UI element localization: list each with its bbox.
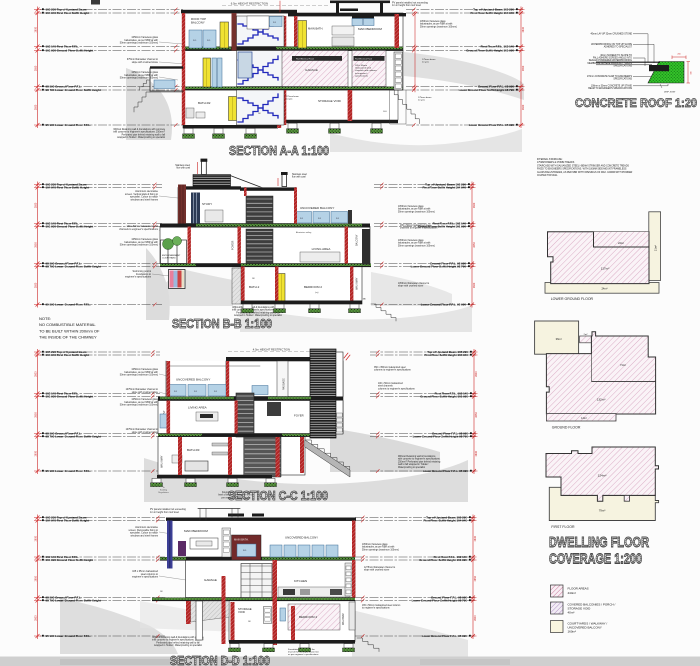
svg-text:2850: 2850 [35,65,38,71]
svg-text:1050mm Rainwater channel to: 1050mm Rainwater channel to [398,282,430,285]
svg-text:MAIN BEDROOM: MAIN BEDROOM [184,529,208,533]
svg-text:specifications: specifications [355,74,369,77]
svg-text:2800: 2800 [475,450,478,456]
svg-text:24m²: 24m² [601,287,607,291]
svg-text:Lower Ground Floor F.F.L. 95: Lower Ground Floor F.F.L. 95 990 [423,469,469,473]
svg-text:2m²: 2m² [584,333,588,336]
svg-text:STAIRCASE WITH GALVANIZED STEE: STAIRCASE WITH GALVANIZED STEEL I-BEAM S… [537,164,629,167]
svg-text:FALL ADHERE SCREED ANGLE INTO: FALL ADHERE SCREED ANGLE INTO [593,57,632,60]
svg-text:98 790 Lower Ground Floor Sof: 98 790 Lower Ground Floor Soffit Height [46,88,101,92]
svg-text:First Floor Soffit Height 104: First Floor Soffit Height 104 940 [422,186,466,190]
svg-text:95 990 Lower Ground Floor F.F: 95 990 Lower Ground Floor F.F.L. [46,303,91,307]
svg-text:balustrades, as per NBR at wit: balustrades, as per NBR at with [398,242,431,245]
svg-text:2800: 2800 [473,202,476,208]
svg-text:350 x 350mm Galvanized steel: 350 x 350mm Galvanized steel [374,366,406,369]
svg-text:(sq): (sq) [315,292,319,294]
svg-text:flue with cowl: flue with cowl [292,176,306,179]
svg-text:R-5: R-5 [174,391,177,393]
svg-text:14m²: 14m² [581,417,587,420]
svg-text:BATH.R2: BATH.R2 [198,101,211,105]
svg-text:CONCRETE ROOF 1:20: CONCRETE ROOF 1:20 [575,98,697,110]
svg-text:UNCOVERED BALCONY: UNCOVERED BALCONY [176,378,210,382]
svg-text:101 990 Ground Floor Soffit H: 101 990 Ground Floor Soffit Height [46,395,94,399]
svg-text:slope with crushed stone: slope with crushed stone [132,391,159,394]
svg-text:GARAGE: GARAGE [204,578,217,582]
svg-text:infill concrete to engineer's: infill concrete to engineer's specificat… [113,131,165,134]
svg-text:FOYER: FOYER [231,241,235,250]
svg-text:170mm CONCRETE SLAB TO ENGINEE: 170mm CONCRETE SLAB TO ENGINEER'S [587,75,633,78]
svg-text:BEDROOM 4: BEDROOM 4 [299,615,317,619]
svg-text:2800: 2800 [475,371,478,377]
svg-text:MAIN BATH.: MAIN BATH. [308,27,323,31]
svg-text:1050mm frameless glass: 1050mm frameless glass [398,205,424,208]
svg-text:SECTION C-C 1:100: SECTION C-C 1:100 [228,489,328,503]
svg-text:Lower Ground Floor F.F.L. 95: Lower Ground Floor F.F.L. 95 990 [422,634,468,638]
svg-text:Perforated pipe behind retaini: Perforated pipe behind retaining wall to… [122,133,166,136]
svg-text:FOYER: FOYER [294,414,304,418]
svg-text:Plant/Electrical Panel: Plant/Electrical Panel [296,58,314,61]
svg-text:175MM RISERS & 270MM TREADS: 175MM RISERS & 270MM TREADS [537,161,575,164]
svg-text:2800: 2800 [522,26,525,32]
svg-text:36m²: 36m² [556,337,562,341]
svg-text:104 940 First Floor Soffit He: 104 940 First Floor Soffit Height [46,186,90,190]
svg-text:R-5: R-5 [336,218,339,220]
svg-text:101 990 Ground Floor Soffit H: 101 990 Ground Floor Soffit Height [46,49,94,53]
svg-text:INTERNAL STAIRCASE:: INTERNAL STAIRCASE: [537,158,563,161]
svg-text:COVERAGE 1:200: COVERAGE 1:200 [549,552,642,568]
svg-text:98 790 Lower Ground Floor Sof: 98 790 Lower Ground Floor Soffit Height [46,435,101,439]
svg-text:1m in height from roof level: 1m in height from roof level [150,511,179,514]
svg-text:50mm openings (maximum 100mm): 50mm openings (maximum 100mm) [362,549,399,551]
svg-text:2800: 2800 [35,615,38,621]
svg-text:THE INSIDE OF THE CHIMNEY: THE INSIDE OF THE CHIMNEY [39,335,97,340]
svg-text:R-5: R-5 [273,22,276,24]
svg-text:to spec: to spec [286,98,293,101]
svg-text:50mm openings (maximum 100mm): 50mm openings (maximum 100mm) [120,374,158,377]
svg-text:2800: 2800 [522,104,525,110]
svg-text:50mm openings (maximum 100mm): 50mm openings (maximum 100mm) [120,77,158,80]
svg-text:2850: 2850 [35,242,38,248]
svg-text:PASSAGE: PASSAGE [283,378,286,390]
svg-text:COURTYARD: COURTYARD [162,257,176,260]
svg-text:BEDROOM 2: BEDROOM 2 [304,285,322,289]
svg-text:slope with crushed stone: slope with crushed stone [132,61,159,64]
svg-text:engineer's specifications: engineer's specifications [125,276,152,279]
svg-text:2800: 2800 [474,535,477,541]
svg-text:1050mm frameless glass: 1050mm frameless glass [420,20,446,23]
svg-text:COATED TOP-RAIL: COATED TOP-RAIL [537,174,558,177]
svg-text:windows and steel frames: windows and steel frames [130,534,158,537]
svg-text:to engineer's specifications: to engineer's specifications [362,607,390,610]
svg-text:Ground Floor Soffit Height 10: Ground Floor Soffit Height 101 990 [466,49,514,53]
svg-text:2850: 2850 [35,575,38,581]
svg-text:Plant/Electrical Panel: Plant/Electrical Panel [355,58,373,61]
svg-text:50mm openings (maximum 100mm): 50mm openings (maximum 100mm) [120,42,158,45]
svg-text:Lower Ground Floor F.F.L. 95: Lower Ground Floor F.F.L. 95 990 [469,123,515,127]
svg-text:MAIN BATH.: MAIN BATH. [234,538,249,542]
svg-text:40m²: 40m² [568,611,575,615]
svg-text:KITCHEN: KITCHEN [294,579,307,583]
svg-text:165 x 50mm Galvanized steel co: 165 x 50mm Galvanized steel column [362,604,401,607]
svg-text:132m²: 132m² [597,398,606,402]
svg-text:2850: 2850 [475,412,478,418]
svg-text:1275mm Rainwater channel to: 1275mm Rainwater channel to [364,566,396,569]
svg-text:with concrete to engineer's sp: with concrete to engineer's specificatio… [398,458,441,461]
svg-text:engineer's specifications: engineer's specifications [132,576,159,579]
svg-text:balustrades, as per NBR at wit: balustrades, as per NBR at with [420,23,453,26]
svg-text:Ground Floor Soffit Height 10: Ground Floor Soffit Height 101 990 [420,395,468,399]
svg-text:Waterproofing to specialist: Waterproofing to specialist [398,466,425,469]
svg-text:WALKWAY: WALKWAY [342,613,345,625]
svg-text:50mm openings (maximum 100mm): 50mm openings (maximum 100mm) [398,245,435,247]
svg-text:NO COMBUSTIBLE MATERIAL: NO COMBUSTIBLE MATERIAL [39,322,96,327]
svg-text:Without Retaining wall & found: Without Retaining wall & foundations wit… [113,128,165,131]
svg-text:104 940 First Floor Soffit He: 104 940 First Floor Soffit Height [46,519,90,523]
svg-text:50mm openings (maximum 100mm): 50mm openings (maximum 100mm) [120,404,158,407]
svg-text:columns to engineer's specific: columns to engineer's specifications [378,387,416,390]
svg-text:2800: 2800 [35,282,38,288]
svg-text:to spec: to spec [418,99,426,102]
svg-text:1050mm frameless glass: 1050mm frameless glass [398,239,424,242]
svg-text:LOWER GROUND FLOOR: LOWER GROUND FLOOR [551,297,594,301]
svg-text:2800: 2800 [474,615,477,621]
svg-text:ADHERED TO SPECIALIST: ADHERED TO SPECIALIST [604,46,633,49]
svg-text:TO BE BUILT WITHIN 200mm OF: TO BE BUILT WITHIN 200mm OF [39,328,100,333]
svg-text:Lower Ground Floor Soffit Heig: Lower Ground Floor Soffit Height 98 790 [411,265,467,269]
svg-text:Aluminium railing: Aluminium railing [296,231,311,234]
svg-text:UNCOVERED BALCONY: UNCOVERED BALCONY [300,206,334,210]
svg-text:Lower Ground Floor Soffit Heig: Lower Ground Floor Soffit Height 98 790 [459,88,515,92]
svg-text:to engineer's: to engineer's [355,72,368,75]
svg-text:2800: 2800 [35,535,38,541]
svg-text:2800: 2800 [35,202,38,208]
svg-text:50mm openings (maximum 100mm): 50mm openings (maximum 100mm) [420,26,457,28]
svg-text:2850: 2850 [522,65,525,71]
svg-text:FIXED TO ENGINEERS SPECIFICATI: FIXED TO ENGINEERS SPECIFICATIONS. WITH … [537,168,627,171]
svg-text:channels to engineer's specifi: channels to engineer's specifications [119,228,159,231]
svg-text:21m²: 21m² [654,245,658,251]
svg-text:wrapped in 'hidden'. Waterproo: wrapped in 'hidden'. Waterproofing to sp… [117,136,165,139]
svg-text:Regulations: Regulations [158,491,169,494]
svg-text:DWELLING FLOOR: DWELLING FLOOR [549,535,649,551]
svg-text:2800: 2800 [473,282,476,288]
svg-text:98 790 Lower Ground Floor Sof: 98 790 Lower Ground Floor Soffit Height [46,265,101,269]
svg-text:channels to engineer's specifi: channels to engineer's specifications [400,227,438,230]
svg-text:100 x 50mm Galvanized: 100 x 50mm Galvanized [378,383,403,385]
svg-text:as per engineer's specificatio: as per engineer's specifications [288,653,319,656]
svg-text:FIRST FLOOR: FIRST FLOOR [551,525,575,529]
svg-text:124m²: 124m² [598,474,607,478]
svg-text:BATH.R3: BATH.R3 [187,448,200,452]
svg-text:95 990 Lower Ground Floor F.F: 95 990 Lower Ground Floor F.F.L. [46,123,91,127]
svg-text:4.5m HEIGHT RESTRICTION: 4.5m HEIGHT RESTRICTION [253,348,290,352]
svg-text:First Floor Soffit Height 104: First Floor Soffit Height 104 940 [423,519,467,523]
svg-text:WALKWAY: WALKWAY [161,455,164,468]
svg-text:2800: 2800 [35,450,38,456]
svg-text:1050mm frameless glass: 1050mm frameless glass [362,543,388,546]
svg-text:LIVING AREA: LIVING AREA [312,247,331,251]
svg-text:balustrades, as per NBR at wit: balustrades, as per NBR at with [362,546,395,549]
svg-text:MAIN BEDROOM: MAIN BEDROOM [358,27,382,31]
svg-text:444m²: 444m² [568,591,577,595]
svg-text:SECTION D-D 1:100: SECTION D-D 1:100 [170,654,270,666]
svg-text:Lower Ground Floor Soffit Heig: Lower Ground Floor Soffit Height 98 790 [412,599,468,603]
svg-text:Without Retaining wall & found: Without Retaining wall & foundations [398,455,436,458]
svg-text:2850: 2850 [474,575,477,581]
svg-text:SECTION B-B 1:100: SECTION B-B 1:100 [172,317,272,331]
svg-text:98 790 Lower Ground Floor Sof: 98 790 Lower Ground Floor Soffit Height [46,599,101,603]
svg-text:columns to engineer's specific: columns to engineer's specifications [374,369,412,372]
svg-text:VOID: VOID [238,610,245,614]
svg-text:wrapped in 'hidden'. Waterproo: wrapped in 'hidden'. Waterproofing to sp… [154,644,202,647]
svg-text:First Floor Soffit Height 104: First Floor Soffit Height 104 940 [424,353,468,357]
svg-text:slope with crushed stone: slope with crushed stone [364,569,390,572]
svg-text:165 x 50mm Galvanized steel: 165 x 50mm Galvanized steel [400,224,431,227]
svg-text:R-5: R-5 [214,391,217,393]
svg-text:slope with crushed stone: slope with crushed stone [398,285,424,288]
svg-text:R-5: R-5 [300,218,303,220]
svg-text:WALKWAY: WALKWAY [356,277,359,290]
svg-text:95 990 Lower Ground Floor F.F: 95 990 Lower Ground Floor F.F.L. [46,469,91,473]
svg-text:R-5: R-5 [318,218,321,220]
svg-text:BATH.2: BATH.2 [249,285,260,289]
svg-text:windows and steel frames: windows and steel frames [130,198,158,201]
svg-text:2800: 2800 [35,371,38,377]
svg-text:LIVING AREA: LIVING AREA [188,406,207,410]
svg-text:FLOOR AREAS: FLOOR AREAS [568,587,589,591]
svg-text:balustrades, as per NBR at wit: balustrades, as per NBR at with [398,208,431,211]
svg-text:Ground Floor Soffit Height 10: Ground Floor Soffit Height 101 990 [419,558,467,562]
svg-text:2800: 2800 [35,26,38,32]
svg-text:Stainless steel: Stainless steel [175,164,190,167]
svg-text:95 990 Lower Ground Floor F.F: 95 990 Lower Ground Floor F.F.L. [46,634,91,638]
svg-text:slope with crushed stone: slope with crushed stone [132,431,159,434]
svg-text:GARAGE: GARAGE [305,68,318,72]
svg-text:NOTE:: NOTE: [39,316,51,321]
svg-text:BALCONY: BALCONY [356,234,359,246]
svg-text:1m in height from roof level: 1m in height from roof level [392,4,421,7]
svg-text:R-5: R-5 [194,391,197,393]
svg-text:50mm openings (maximum 100mm): 50mm openings (maximum 100mm) [120,244,158,247]
svg-text:100mm x 50mm CONCRETE UP STAND: 100mm x 50mm CONCRETE UP STAND [591,85,633,88]
svg-text:250mm? Perforated pipe behind: 250mm? Perforated pipe behind retaining [398,460,441,463]
svg-text:2850: 2850 [35,412,38,418]
svg-text:Galvanized steel: Galvanized steel [355,67,372,70]
svg-text:to spec: to spec [422,61,430,64]
svg-text:71m²: 71m² [620,363,626,367]
svg-text:BEAM TO ENGINEER'S SPECIFICATI: BEAM TO ENGINEER'S SPECIFICATIONS [588,87,632,90]
svg-text:GROUND FLOOR: GROUND FLOOR [552,426,581,430]
svg-text:Stainless steel: Stainless steel [292,173,307,176]
svg-text:104 940 First Floor Soffit He: 104 940 First Floor Soffit Height [46,11,90,15]
svg-text:BALCONY: BALCONY [191,20,205,24]
svg-text:DRIP JOINT: DRIP JOINT [664,92,676,94]
svg-text:STUDY: STUDY [202,202,212,206]
svg-text:6.5m HEIGHT RESTRICTION: 6.5m HEIGHT RESTRICTION [231,2,268,6]
svg-text:160m²: 160m² [568,630,577,634]
svg-text:117m²: 117m² [601,267,610,271]
svg-text:104 940 First Floor Soffit He: 104 940 First Floor Soffit Height [46,353,90,357]
svg-text:2850: 2850 [473,242,476,248]
svg-text:WATERPROOFING ON TOP UP SLOPE: WATERPROOFING ON TOP UP SLOPE [591,43,632,46]
svg-text:Lower Ground Floor F.F.L. 95: Lower Ground Floor F.F.L. 95 990 [421,303,467,307]
svg-text:SECTION A-A 1:100: SECTION A-A 1:100 [229,144,329,158]
svg-text:50mm openings (maximum 100mm): 50mm openings (maximum 100mm) [398,211,435,213]
svg-text:steel channels: steel channels [378,385,394,388]
svg-text:flue with cowl: flue with cowl [176,167,190,170]
svg-text:SPECIFICATIONS: SPECIFICATIONS [613,78,632,81]
svg-text:101 990 Ground Floor Soffit H: 101 990 Ground Floor Soffit Height [46,558,94,562]
svg-text:40mm LAY-UP 32mm CRUSHED STONE: 40mm LAY-UP 32mm CRUSHED STONE [590,33,632,36]
svg-text:101 990 Ground Floor Soffit H: 101 990 Ground Floor Soffit Height [46,225,94,229]
svg-text:Lower Ground Floor Soffit Heig: Lower Ground Floor Soffit Height 98 790 [413,435,469,439]
svg-text:24m²: 24m² [618,241,624,245]
svg-text:ENTERTAINMENT: ENTERTAINMENT [162,254,181,257]
svg-text:First Floor Soffit Height 104: First Floor Soffit Height 104 940 [470,11,514,15]
svg-text:GLASS BALUSTRADES, AS PER NBR: GLASS BALUSTRADES, AS PER NBR WITH OPENI… [537,171,633,174]
svg-text:wall to fall wrapped in 'hidde: wall to fall wrapped in 'hidden'. [398,463,429,466]
svg-text:STORAGE VOID: STORAGE VOID [318,99,342,103]
svg-text:Perforated pipe behind retaini: Perforated pipe behind retaining wall to… [156,641,200,644]
svg-text:79m²: 79m² [599,509,606,513]
svg-text:2800: 2800 [35,104,38,110]
svg-text:UNCOVERED BALCONY: UNCOVERED BALCONY [285,536,318,540]
